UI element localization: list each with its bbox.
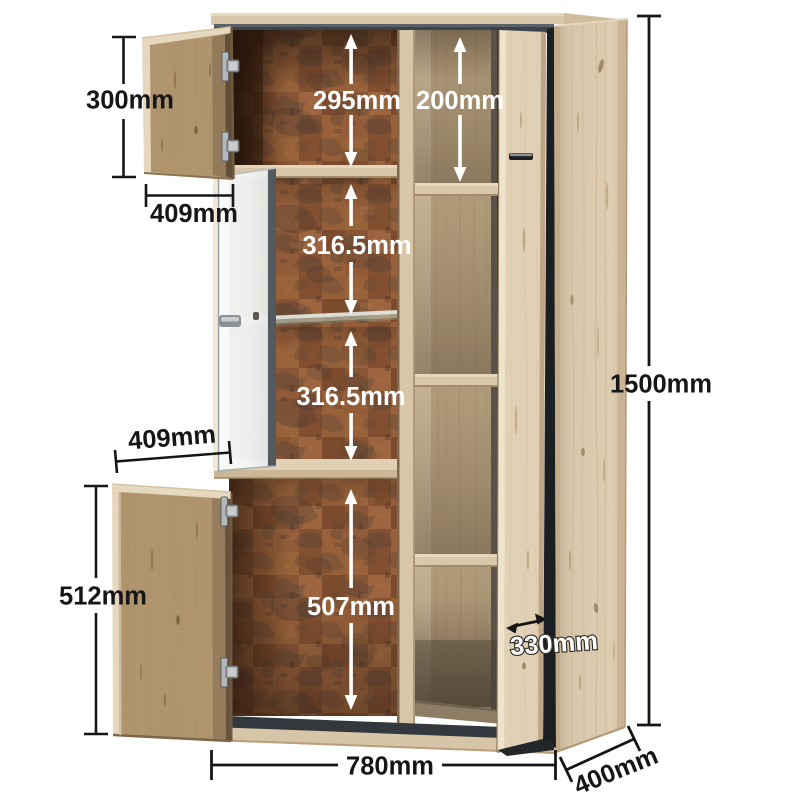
svg-text:512mm: 512mm xyxy=(59,583,147,611)
svg-text:409mm: 409mm xyxy=(150,200,238,228)
svg-text:507mm: 507mm xyxy=(307,593,395,621)
svg-text:316.5mm: 316.5mm xyxy=(296,383,405,411)
svg-text:1500mm: 1500mm xyxy=(610,371,712,399)
svg-text:300mm: 300mm xyxy=(86,87,174,115)
svg-text:295mm: 295mm xyxy=(313,87,401,115)
svg-text:316.5mm: 316.5mm xyxy=(302,232,411,260)
svg-text:780mm: 780mm xyxy=(346,753,434,781)
svg-text:200mm: 200mm xyxy=(416,87,504,115)
